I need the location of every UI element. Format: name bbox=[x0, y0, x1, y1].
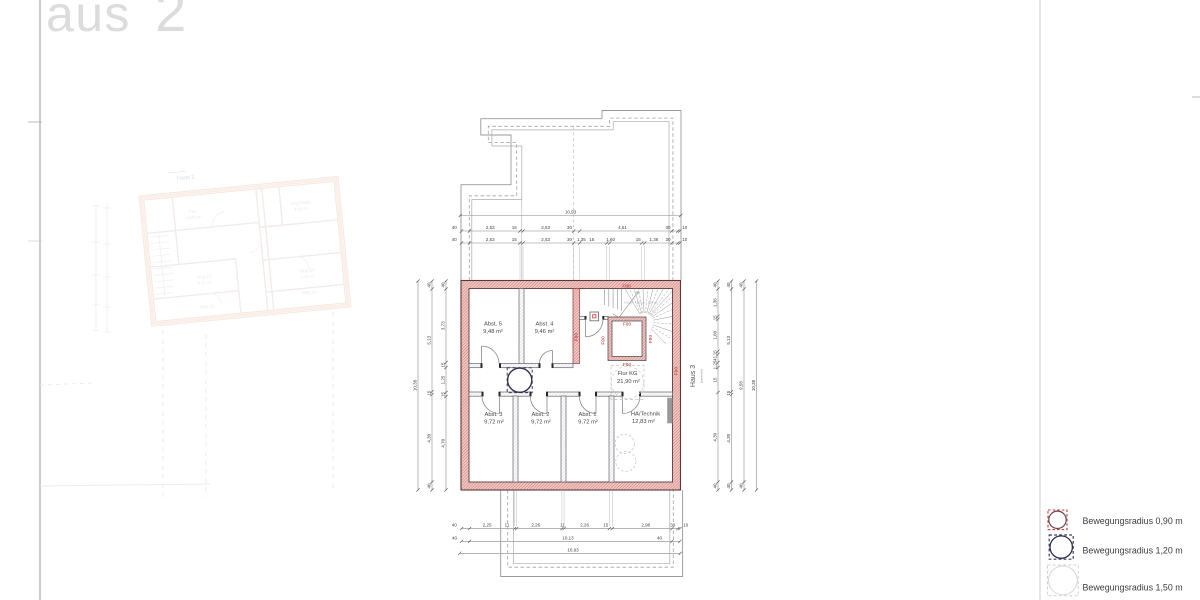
svg-text:40: 40 bbox=[738, 282, 743, 288]
svg-text:Haus 3: Haus 3 bbox=[690, 365, 697, 387]
svg-text:2,26: 2,26 bbox=[531, 523, 540, 528]
svg-text:2,98: 2,98 bbox=[641, 523, 650, 528]
svg-text:F90: F90 bbox=[574, 333, 580, 342]
svg-text:30: 30 bbox=[567, 237, 573, 242]
svg-text:9,72 m²: 9,72 m² bbox=[578, 420, 598, 426]
svg-text:2,53: 2,53 bbox=[541, 225, 550, 230]
svg-text:11: 11 bbox=[505, 523, 510, 528]
svg-text:4,70: 4,70 bbox=[440, 438, 445, 447]
svg-text:10: 10 bbox=[682, 237, 688, 242]
svg-text:10,38: 10,38 bbox=[412, 379, 417, 391]
svg-text:40: 40 bbox=[426, 282, 431, 288]
svg-text:21,90 m²: 21,90 m² bbox=[617, 379, 640, 385]
svg-text:40: 40 bbox=[452, 225, 458, 230]
svg-text:Abst. 1: Abst. 1 bbox=[578, 412, 596, 418]
svg-text:2,26: 2,26 bbox=[580, 523, 589, 528]
svg-text:Abst. 2: Abst. 2 bbox=[531, 412, 549, 418]
svg-text:F90: F90 bbox=[623, 322, 632, 328]
svg-text:Flur: Flur bbox=[189, 208, 197, 214]
svg-text:Abst. 5: Abst. 5 bbox=[484, 322, 502, 328]
svg-text:40: 40 bbox=[726, 483, 731, 489]
svg-text:HA/Technik: HA/Technik bbox=[631, 412, 660, 418]
svg-text:11: 11 bbox=[560, 523, 565, 528]
svg-text:15: 15 bbox=[589, 237, 595, 242]
svg-text:F90: F90 bbox=[622, 284, 631, 290]
svg-text:9,48 m²: 9,48 m² bbox=[483, 329, 503, 335]
svg-text:40: 40 bbox=[426, 483, 431, 489]
svg-text:40: 40 bbox=[440, 282, 445, 288]
svg-text:40: 40 bbox=[738, 483, 743, 489]
svg-text:15: 15 bbox=[636, 237, 642, 242]
svg-text:30: 30 bbox=[567, 225, 573, 230]
svg-text:5,13: 5,13 bbox=[426, 335, 431, 344]
svg-text:40: 40 bbox=[726, 282, 731, 288]
svg-text:aus 2: aus 2 bbox=[46, 0, 188, 43]
svg-text:15: 15 bbox=[603, 523, 609, 528]
svg-text:1,25: 1,25 bbox=[712, 360, 717, 369]
svg-text:Flur KG: Flur KG bbox=[618, 371, 638, 377]
svg-text:H 2,50 · 18,2 cm · 1,26 cm: H 2,50 · 18,2 cm · 1,26 cm bbox=[624, 301, 658, 305]
svg-text:2,53: 2,53 bbox=[486, 237, 495, 242]
svg-text:F90: F90 bbox=[623, 362, 632, 368]
svg-text:15: 15 bbox=[712, 350, 717, 356]
svg-text:(barrierefrei): (barrierefrei) bbox=[700, 369, 704, 383]
svg-text:10,13: 10,13 bbox=[562, 535, 574, 540]
svg-text:4,30: 4,30 bbox=[426, 433, 431, 442]
svg-text:5,13: 5,13 bbox=[726, 335, 731, 344]
svg-text:4,61: 4,61 bbox=[618, 225, 627, 230]
svg-text:40: 40 bbox=[452, 523, 458, 528]
svg-text:40: 40 bbox=[657, 535, 663, 540]
svg-text:15: 15 bbox=[512, 225, 518, 230]
svg-text:2,53: 2,53 bbox=[486, 225, 495, 230]
svg-text:3,73: 3,73 bbox=[440, 321, 445, 330]
svg-text:40: 40 bbox=[712, 483, 717, 489]
svg-text:4,30: 4,30 bbox=[712, 432, 717, 441]
svg-text:40: 40 bbox=[712, 282, 717, 288]
svg-text:30: 30 bbox=[665, 225, 671, 230]
svg-text:1,35: 1,35 bbox=[577, 237, 586, 242]
svg-text:15: 15 bbox=[440, 362, 445, 368]
svg-text:15: 15 bbox=[726, 390, 731, 396]
svg-text:2,53: 2,53 bbox=[541, 237, 550, 242]
svg-text:30: 30 bbox=[665, 237, 671, 242]
svg-text:1,36: 1,36 bbox=[712, 298, 717, 307]
svg-text:9,72 m²: 9,72 m² bbox=[484, 420, 504, 426]
svg-text:15: 15 bbox=[712, 315, 717, 321]
svg-text:F90: F90 bbox=[601, 336, 607, 345]
svg-text:1,60: 1,60 bbox=[606, 237, 615, 242]
svg-text:Abst. 3: Abst. 3 bbox=[484, 412, 502, 418]
svg-text:10,93: 10,93 bbox=[565, 209, 577, 214]
svg-text:F90: F90 bbox=[674, 367, 680, 376]
svg-text:F90: F90 bbox=[648, 335, 654, 344]
svg-text:15: 15 bbox=[712, 377, 717, 383]
svg-text:15: 15 bbox=[426, 390, 431, 396]
svg-text:Bewegungsradius 1,20 m: Bewegungsradius 1,20 m bbox=[1083, 545, 1183, 555]
svg-text:2,25: 2,25 bbox=[483, 523, 492, 528]
svg-text:4,30: 4,30 bbox=[726, 433, 731, 442]
svg-text:1,36: 1,36 bbox=[650, 237, 659, 242]
svg-text:Abst. 4: Abst. 4 bbox=[535, 322, 554, 328]
svg-text:1,25: 1,25 bbox=[440, 375, 445, 384]
svg-text:15: 15 bbox=[512, 237, 518, 242]
svg-text:15: 15 bbox=[440, 392, 445, 398]
svg-text:41: 41 bbox=[712, 355, 717, 361]
svg-text:Bewegungsradius 0,90 m: Bewegungsradius 0,90 m bbox=[1083, 516, 1183, 526]
svg-text:10,93: 10,93 bbox=[567, 547, 579, 552]
svg-text:9,72 m²: 9,72 m² bbox=[531, 420, 551, 426]
svg-text:10: 10 bbox=[683, 523, 689, 528]
svg-text:Bewegungsradius 1,50 m: Bewegungsradius 1,50 m bbox=[1083, 582, 1183, 592]
svg-text:10,38: 10,38 bbox=[751, 379, 756, 391]
svg-text:9,58: 9,58 bbox=[738, 381, 743, 390]
svg-text:12,83 m²: 12,83 m² bbox=[632, 419, 655, 425]
svg-text:10: 10 bbox=[682, 225, 688, 230]
svg-text:40: 40 bbox=[452, 535, 458, 540]
svg-text:9,46 m²: 9,46 m² bbox=[535, 329, 555, 335]
svg-text:1,60: 1,60 bbox=[712, 330, 717, 339]
svg-text:40: 40 bbox=[452, 237, 458, 242]
